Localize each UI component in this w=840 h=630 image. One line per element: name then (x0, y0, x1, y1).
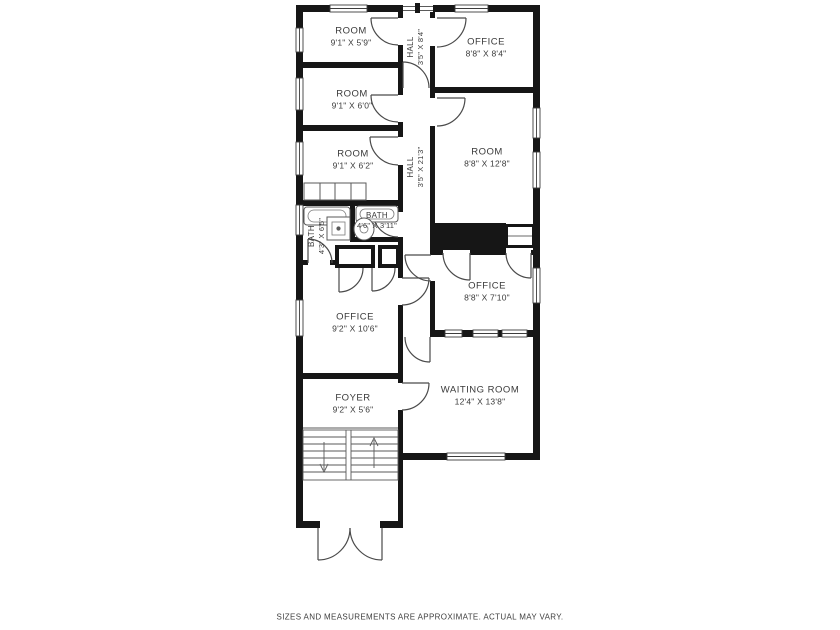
door-office-mid-left (443, 253, 470, 280)
shower-icon (327, 217, 350, 240)
room-name: ROOM (464, 146, 510, 158)
room-dims: 4'3" X 6'5" (317, 218, 327, 254)
door-closet-b (372, 268, 395, 291)
room-dims: 8'8" X 7'10" (464, 293, 510, 304)
window (502, 330, 527, 337)
floor-plan-drawing (0, 0, 840, 630)
door-hall-office-mid (405, 255, 431, 281)
label-foyer: FOYER 9'2" X 5'6" (333, 392, 374, 415)
room-name: OFFICE (466, 36, 507, 48)
window (533, 268, 540, 303)
label-bath-left: BATH 4'3" X 6'5" (307, 218, 327, 254)
counter-icon (304, 183, 366, 200)
window (473, 330, 498, 337)
door-room-right (437, 98, 465, 126)
door-foyer-waiting (402, 383, 429, 410)
door-room1 (371, 18, 398, 45)
room-name: BATH (357, 211, 397, 221)
door-office-top (437, 18, 466, 47)
label-waiting-room: WAITING ROOM 12'4" X 13'8" (441, 384, 519, 407)
room-dims: 3'5" X 8'4" (416, 29, 426, 65)
label-room2: ROOM 9'1" X 6'0" (332, 88, 373, 111)
room-dims: 9'2" X 10'6" (332, 324, 378, 335)
window (455, 5, 488, 12)
room-name: WAITING ROOM (441, 384, 519, 396)
room-dims: 8'8" X 12'8" (464, 159, 510, 170)
room-dims: 9'1" X 6'0" (332, 101, 373, 112)
door-closet-a (339, 268, 363, 292)
disclaimer-text: SIZES AND MEASUREMENTS ARE APPROXIMATE. … (277, 613, 564, 622)
room-name: OFFICE (464, 280, 510, 292)
label-room-right: ROOM 8'8" X 12'8" (464, 146, 510, 169)
window (533, 108, 540, 138)
label-office-top: OFFICE 8'8" X 8'4" (466, 36, 507, 59)
room-dims: 8'8" X 8'4" (466, 49, 507, 60)
window (296, 78, 303, 110)
walls (296, 5, 540, 528)
room-dims: 9'2" X 5'6" (333, 405, 374, 416)
door-office-mid-right (506, 253, 531, 278)
door-hall-waiting (405, 337, 430, 362)
room-name: OFFICE (332, 311, 378, 323)
label-bath-right: BATH 4'6" X 3'11" (357, 211, 397, 231)
door-hall-divider (403, 62, 429, 88)
label-office-mid: OFFICE 8'8" X 7'10" (464, 280, 510, 303)
door-room3 (370, 137, 398, 165)
door-office-left (402, 278, 429, 305)
stairs-up-arrow (370, 438, 378, 468)
room-name: BATH (307, 218, 317, 254)
hall-top-opening (403, 3, 433, 13)
stairs-icon (303, 428, 398, 480)
room-name: HALL (406, 29, 416, 65)
room-name: ROOM (332, 88, 373, 100)
label-hall-top: HALL 3'5" X 8'4" (406, 29, 426, 65)
room-dims: 12'4" X 13'8" (441, 397, 519, 408)
room-name: FOYER (333, 392, 374, 404)
window (296, 142, 303, 175)
room-dims: 4'6" X 3'11" (357, 221, 397, 231)
label-room1: ROOM 9'1" X 5'9" (331, 25, 372, 48)
label-office-left: OFFICE 9'2" X 10'6" (332, 311, 378, 334)
stairs-down-arrow (320, 442, 328, 472)
label-room3: ROOM 9'1" X 6'2" (333, 148, 374, 171)
window (296, 205, 303, 235)
window (330, 5, 367, 12)
window (296, 28, 303, 52)
room-dims: 9'1" X 5'9" (331, 38, 372, 49)
door-room2 (371, 95, 398, 122)
room-name: ROOM (331, 25, 372, 37)
window (533, 152, 540, 188)
floor-plan-page: ROOM 9'1" X 5'9" HALL 3'5" X 8'4" OFFICE… (0, 0, 840, 630)
room-name: HALL (406, 147, 416, 188)
window (447, 453, 505, 460)
window (445, 330, 462, 337)
room-dims: 3'5" X 21'3" (416, 147, 426, 188)
room-name: ROOM (333, 148, 374, 160)
entry-double-door (318, 528, 382, 560)
window (296, 300, 303, 336)
room-dims: 9'1" X 6'2" (333, 161, 374, 172)
label-hall-main: HALL 3'5" X 21'3" (406, 147, 426, 188)
